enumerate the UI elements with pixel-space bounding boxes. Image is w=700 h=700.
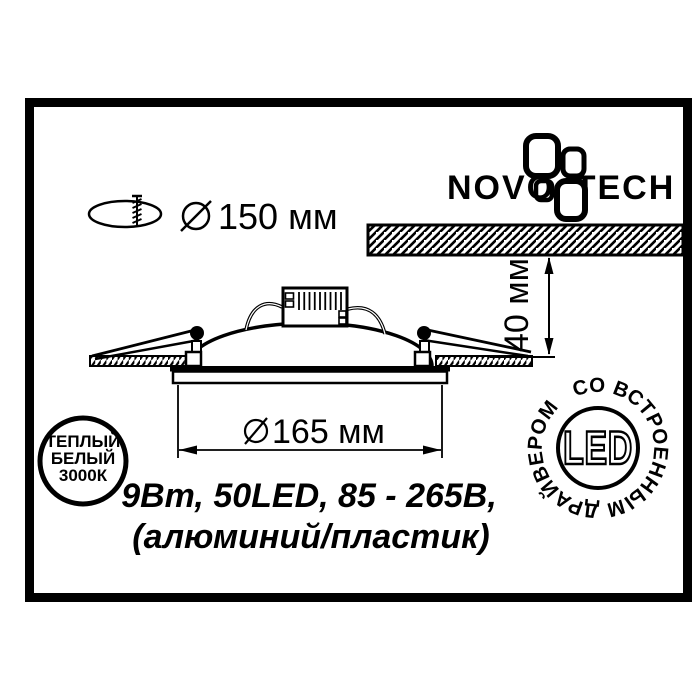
novotech-logo: NOVO TECH [447,136,675,219]
logo-text-right: TECH [575,169,676,207]
diameter-label: 165 мм [272,413,385,451]
warm-white-badge: ТЕПЛЫЙ БЕЛЫЙ 3000К [40,418,126,504]
cutout-label: 150 мм [218,196,338,237]
diameter-icon [181,201,211,231]
arrow-right-icon [423,446,441,455]
diameter-dimension: 165 мм [178,385,442,458]
depth-label: 40 мм [498,258,536,352]
spring-clip-left [90,326,204,366]
cutout-hole-icon [89,196,161,227]
specs-line-1: 9Вт, 50LED, 85 - 265В, [121,477,497,515]
diameter-icon [245,418,267,444]
diagram-canvas: NOVO TECH 150 мм 40 мм [0,0,700,700]
driver-box [283,288,347,326]
specs-line-2: (алюминий/пластик) [132,518,489,556]
fixture-dome [188,323,432,366]
fixture-cross-section [90,288,532,383]
arrow-down-icon [545,338,554,355]
led-driver-badge: СО ВСТРОЕННЫМ ДРАЙВЕРОМ LED [524,374,673,523]
product-spec-sheet: NOVO TECH 150 мм 40 мм [0,0,700,700]
trim-flange [170,366,450,383]
badge-led-text: LED [563,422,633,475]
cutout-dimension: 150 мм [181,196,338,237]
depth-dimension: 40 мм [490,257,555,357]
badge-line-3: 3000К [59,466,108,485]
specs-text: 9Вт, 50LED, 85 - 265В, (алюминий/пластик… [121,477,497,556]
arrow-up-icon [545,257,554,274]
ceiling-section [368,225,683,255]
arrow-left-icon [179,446,197,455]
